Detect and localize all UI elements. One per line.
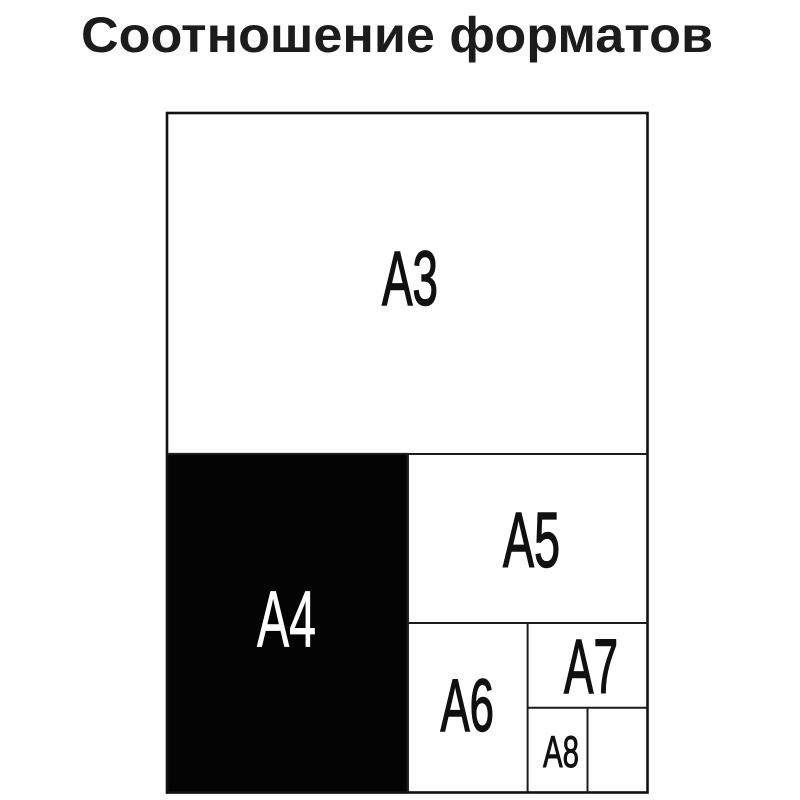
svg-text:A5: A5 [503, 498, 560, 584]
svg-text:A8: A8 [543, 727, 579, 777]
svg-text:Соотношение форматов: Соотношение форматов [81, 7, 713, 63]
svg-text:A3: A3 [382, 236, 438, 322]
svg-text:A4: A4 [257, 575, 316, 664]
svg-text:A7: A7 [564, 624, 618, 710]
svg-text:A6: A6 [440, 664, 494, 747]
